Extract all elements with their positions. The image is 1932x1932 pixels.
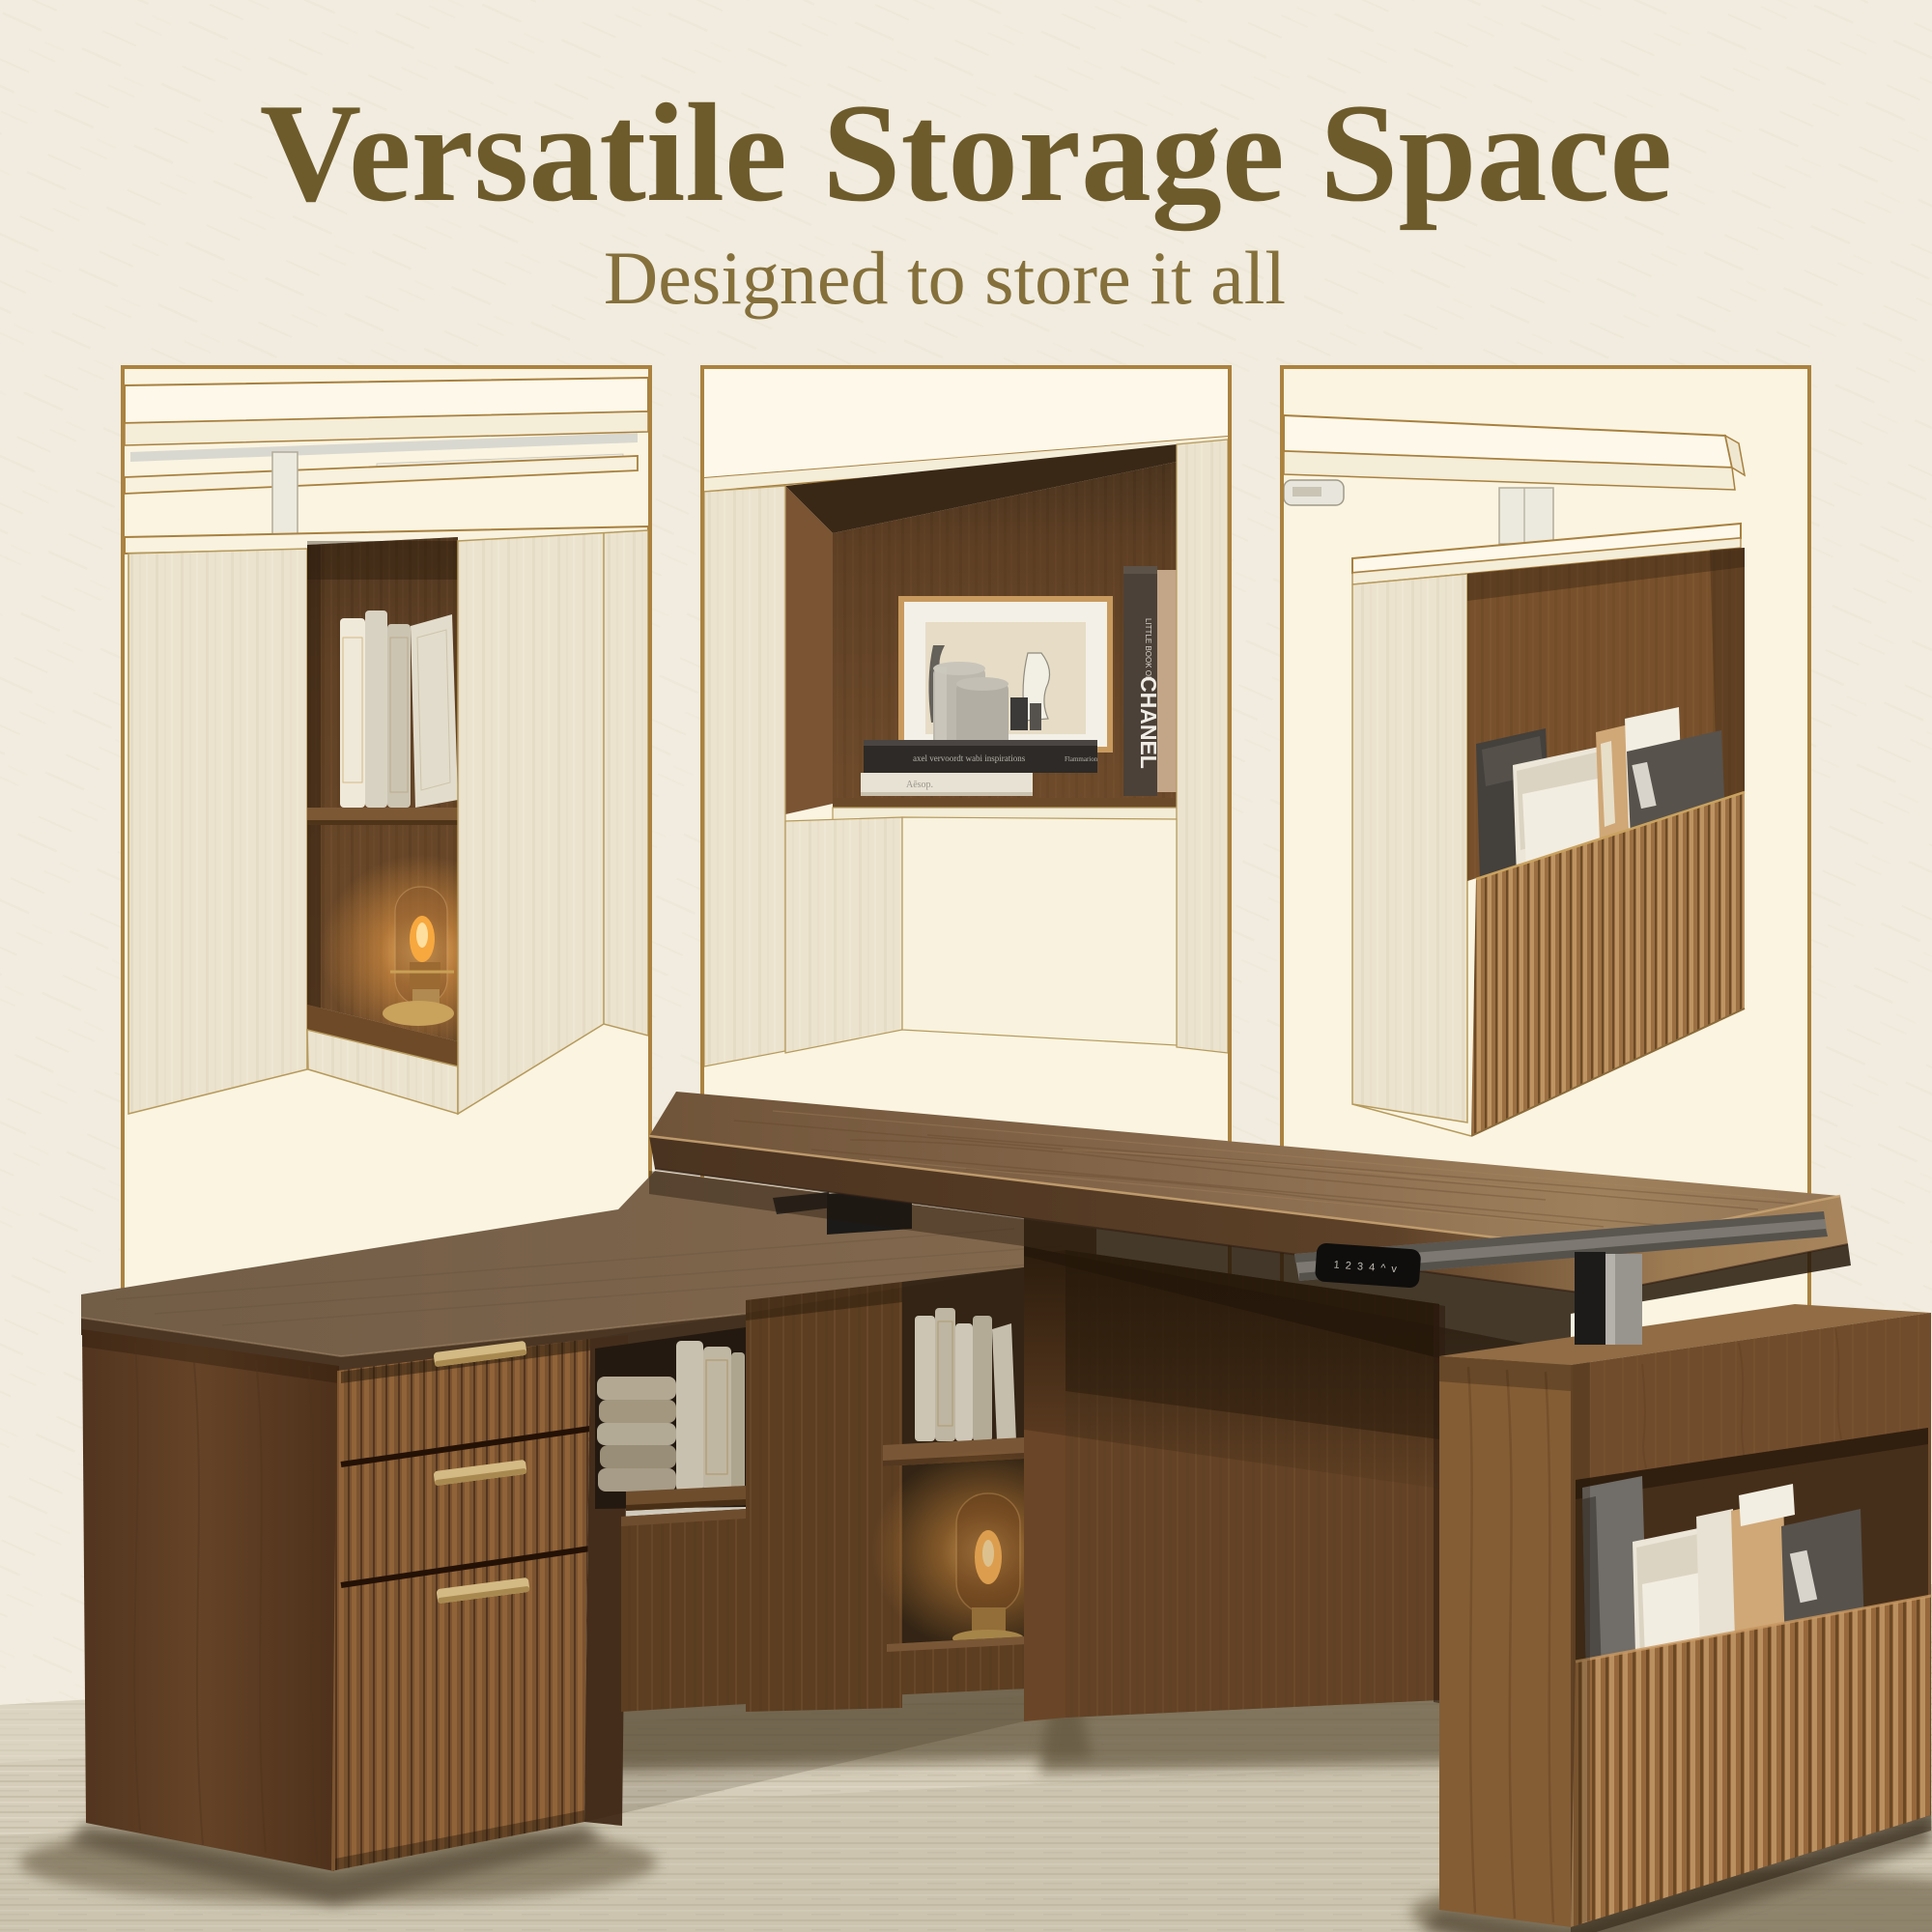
svg-text:Flammarion: Flammarion	[1065, 755, 1098, 763]
svg-text:Versatile Storage Space: Versatile Storage Space	[260, 74, 1672, 231]
svg-text:Aēsop.: Aēsop.	[906, 780, 933, 790]
svg-text:Designed to store it all: Designed to store it all	[604, 236, 1286, 320]
svg-text:axel vervoordt wabi inspirati: axel vervoordt wabi inspirations	[913, 753, 1026, 763]
svg-text:LITTLE BOOK OF: LITTLE BOOK OF	[1144, 618, 1152, 681]
